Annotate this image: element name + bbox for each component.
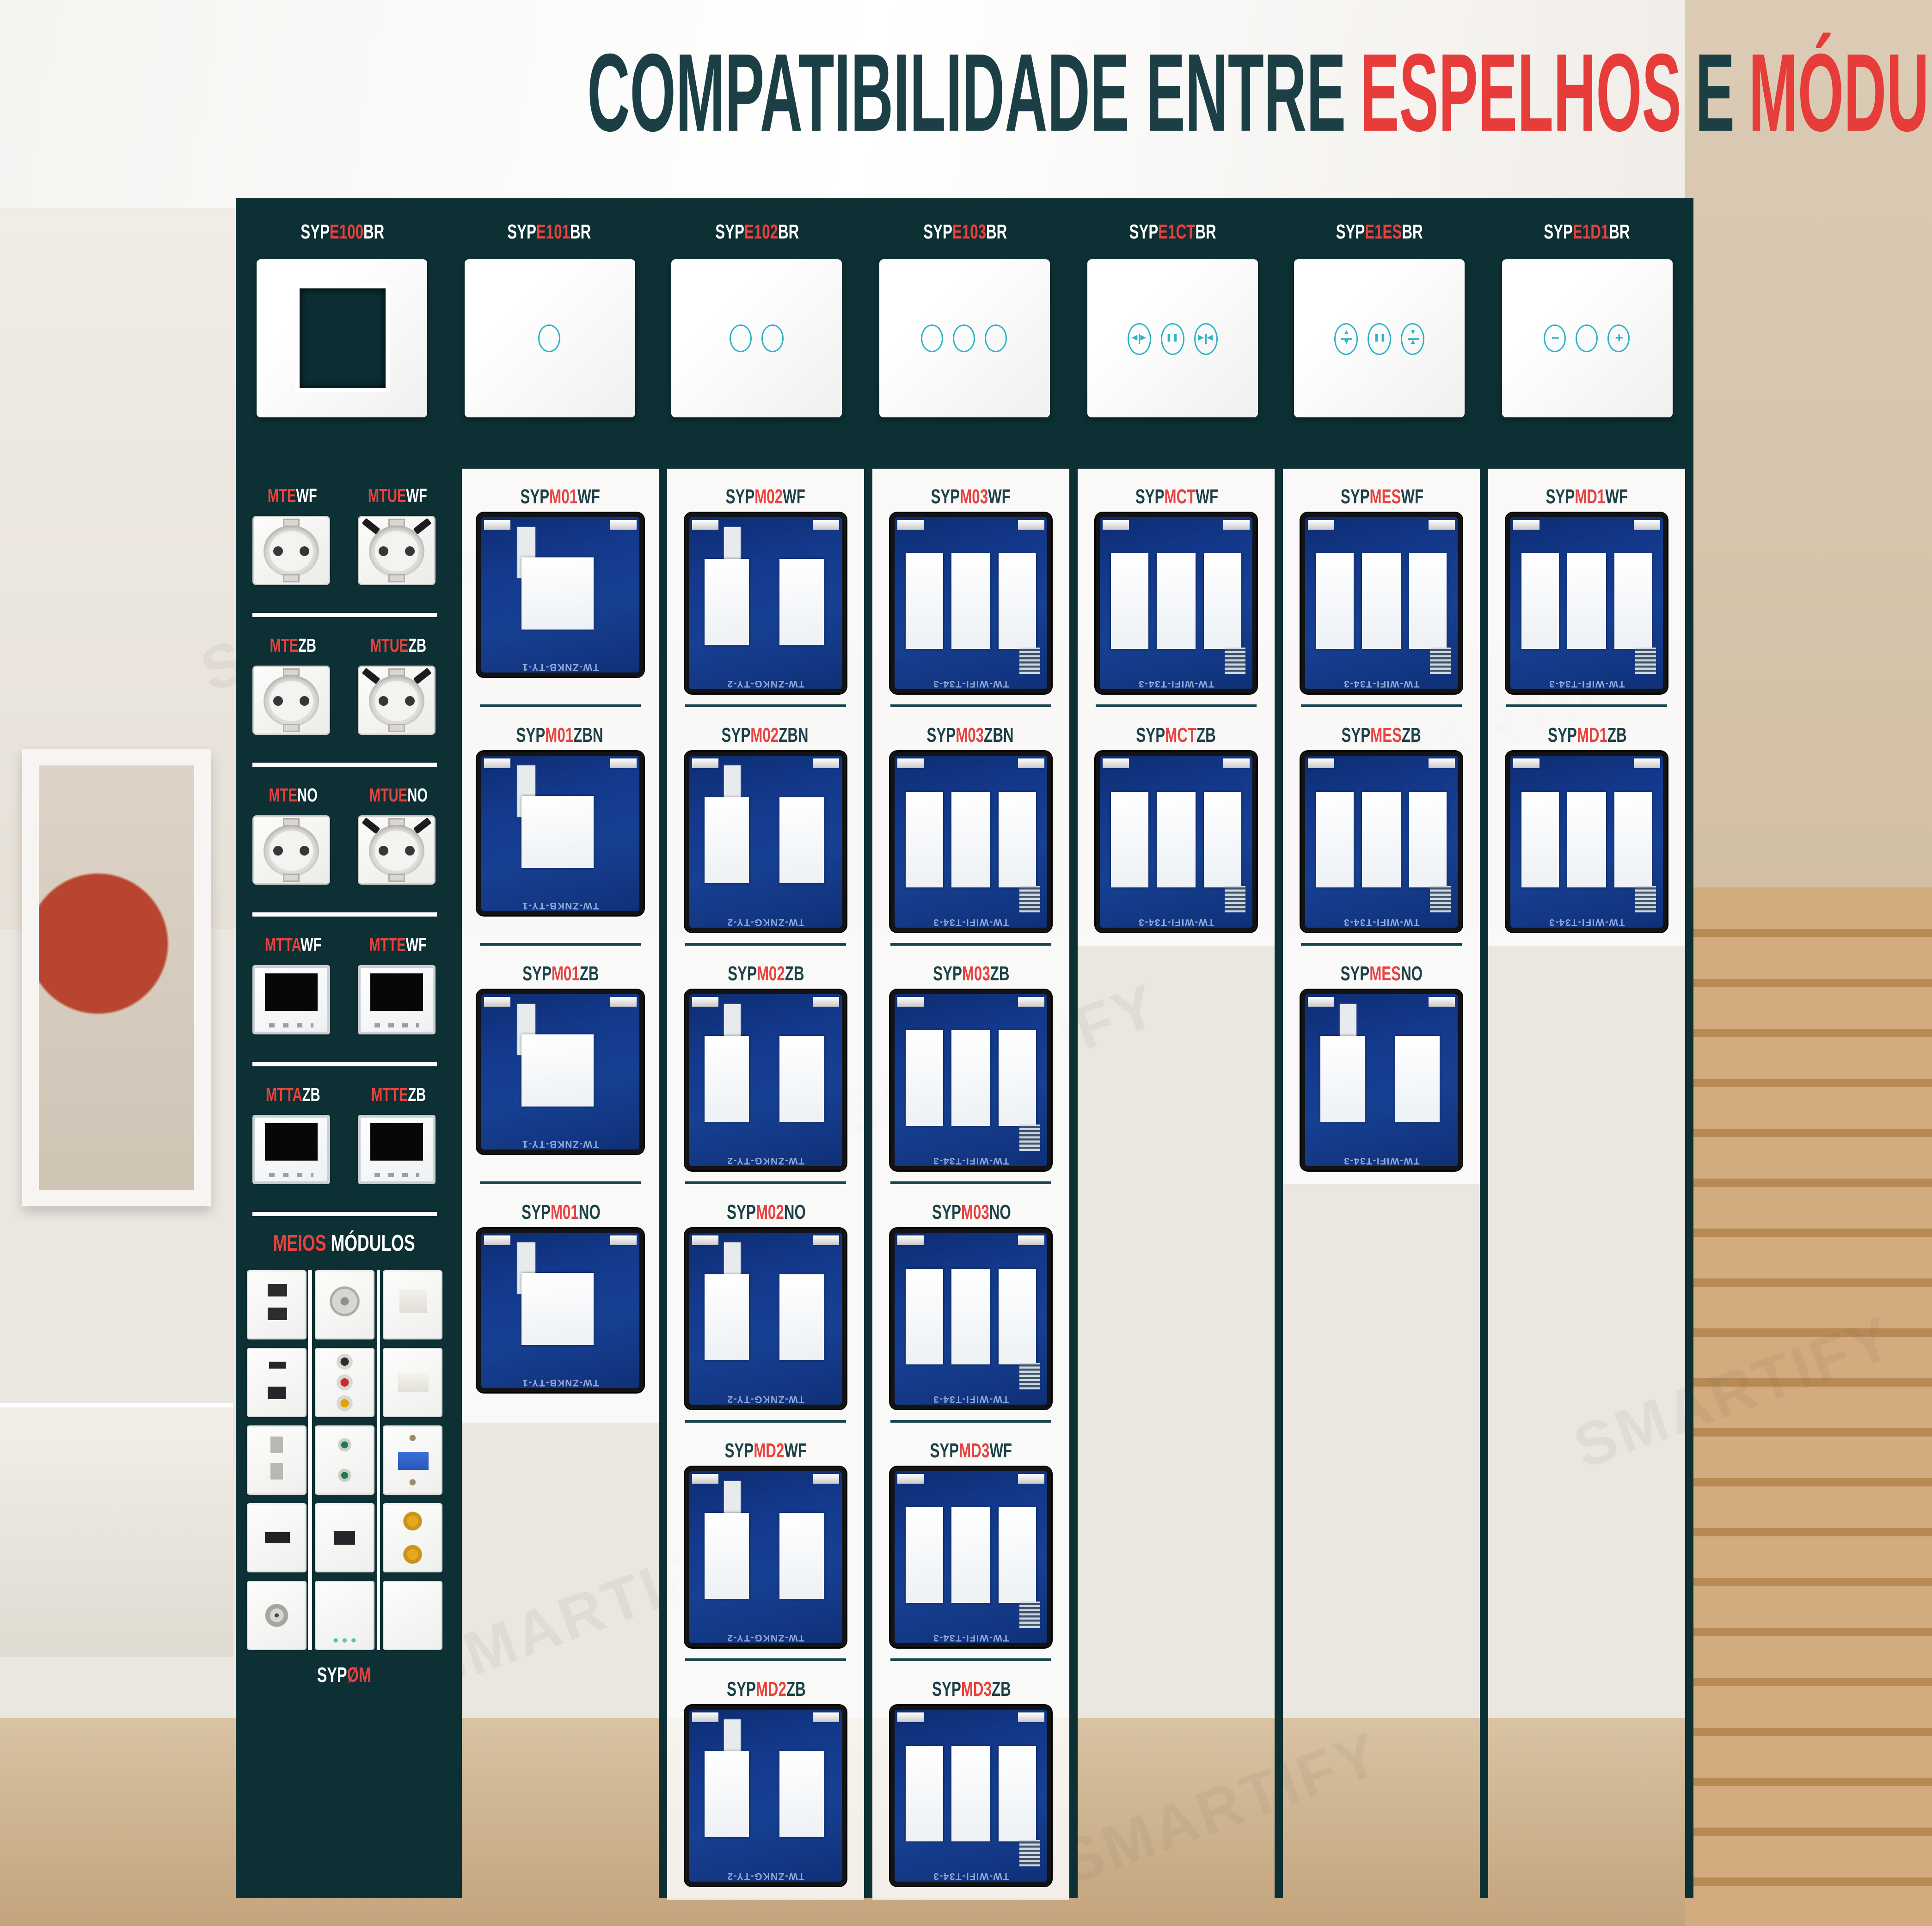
- divider: [252, 1212, 437, 1216]
- pcb-silkscreen: TW-WIFI-T34-3: [895, 1155, 1047, 1164]
- usb-slot-icon: [362, 668, 380, 685]
- module-cell: SYPM02ZBTW-ZNKG-TY-2: [667, 946, 864, 1184]
- half-module-rca-av: [315, 1348, 374, 1417]
- qr-chip: [1636, 887, 1656, 912]
- usb-slot-icon: [362, 518, 380, 535]
- qr-chip: [1020, 887, 1040, 912]
- module-cell: SYPMD1ZBTW-WIFI-T34-3: [1488, 707, 1685, 946]
- qr-chip: [1020, 648, 1040, 674]
- dim-minus-icon: −: [1544, 324, 1566, 352]
- column-m03: SYPM03WFTW-WIFI-T34-3 SYPM03ZBNTW-WIFI-T…: [872, 469, 1069, 1900]
- usb-slot-icon: [413, 818, 432, 834]
- module-image: TW-WIFI-T34-3: [890, 513, 1051, 693]
- module-image: TW-ZNKG-TY-2: [685, 1229, 846, 1409]
- divider: [685, 1181, 846, 1185]
- glass-panels-header: SYPE100BR SYPE101BR SYPE102BR SYPE103BR …: [236, 198, 1693, 469]
- module-cell: SYPM03ZBNTW-WIFI-T34-3: [872, 707, 1069, 946]
- touch-pad: [998, 792, 1037, 888]
- pcb-silkscreen: TW-WIFI-T34-3: [1305, 916, 1458, 926]
- thermostat-image: [358, 965, 435, 1034]
- divider: [252, 763, 437, 766]
- half-module-audio-jacks: [315, 1425, 374, 1495]
- module-cell: SYPMESWFTW-WIFI-T34-3: [1283, 469, 1480, 707]
- touch-pad: [1409, 553, 1447, 649]
- pause-icon: ❚❚: [1160, 323, 1184, 355]
- module-image: TW-WIFI-T34-3: [1506, 513, 1667, 693]
- dim-plus-icon: +: [1608, 324, 1630, 352]
- touch-pad: [1316, 553, 1354, 649]
- touch-pad: [998, 1746, 1037, 1842]
- eu-socket-image: [252, 666, 330, 735]
- thermostat-screen: [370, 1123, 423, 1161]
- pcb-silkscreen: TW-WIFI-T34-3: [895, 916, 1047, 926]
- touch-pad: [1157, 553, 1196, 649]
- module-cell: SYPMD3ZBTW-WIFI-T34-3: [872, 1661, 1069, 1900]
- column-separator: [1069, 469, 1078, 1898]
- divider: [685, 1658, 846, 1662]
- column-mes: SYPMESWFTW-WIFI-T34-3 SYPMESZBTW-WIFI-T3…: [1283, 469, 1480, 1184]
- module-cell: SYPM03WFTW-WIFI-T34-3: [872, 469, 1069, 707]
- pcb-silkscreen: TW-ZNKB-TY-1: [481, 1377, 639, 1387]
- divider: [252, 912, 437, 916]
- pcb-silkscreen: TW-WIFI-T34-3: [895, 1632, 1047, 1641]
- column-separator: [659, 469, 667, 1898]
- module-image: TW-ZNKB-TY-1: [477, 752, 644, 915]
- module-code: SYPM02ZB: [667, 946, 864, 986]
- title-part-dark: COMPATIBILIDADE ENTRE: [587, 32, 1346, 156]
- touch-circle-icon: [730, 324, 752, 352]
- qr-chip: [1430, 887, 1450, 912]
- module-code: MTUEWF: [350, 485, 447, 506]
- eu-socket-usb-image: [358, 815, 435, 885]
- thermostat-screen: [370, 973, 423, 1011]
- divider: [377, 1270, 380, 1650]
- touch-pad: [1409, 792, 1447, 888]
- touch-pad: [905, 553, 944, 649]
- pcb-silkscreen: TW-ZNKG-TY-2: [689, 1393, 842, 1403]
- touch-pad: [998, 1269, 1037, 1365]
- module-code: MTTEWF: [350, 935, 447, 955]
- touch-pad: [1395, 1035, 1440, 1121]
- column-md1: SYPMD1WFTW-WIFI-T34-3 SYPMD1ZBTW-WIFI-T3…: [1488, 469, 1685, 946]
- module-cell: SYPMCTZBTW-WIFI-T34-3: [1078, 707, 1275, 946]
- qr-chip: [1430, 648, 1450, 674]
- module-code: MTTEZB: [350, 1084, 447, 1105]
- touch-pad: [705, 797, 749, 883]
- module-code: SYPMESNO: [1283, 946, 1480, 986]
- divider: [890, 942, 1051, 946]
- module-code: SYPMD3ZB: [872, 1661, 1069, 1701]
- touch-pad: [779, 558, 824, 644]
- module-image: TW-ZNKB-TY-1: [477, 1229, 644, 1392]
- touch-pad: [998, 553, 1037, 649]
- module-code: SYPM03ZBN: [872, 707, 1069, 747]
- module-code: SYPM01NO: [462, 1184, 659, 1224]
- touch-pad: [1110, 553, 1149, 649]
- touch-pad: [779, 1035, 824, 1121]
- touch-circle-icon: [762, 324, 784, 352]
- touch-pad: [1568, 553, 1606, 649]
- usb-slot-icon: [362, 818, 380, 834]
- touch-circle-icon: [953, 324, 975, 352]
- module-cell: SYPMESZBTW-WIFI-T34-3: [1283, 707, 1480, 946]
- module-image: TW-WIFI-T34-3: [890, 1229, 1051, 1409]
- module-cell: SYPM03ZBTW-WIFI-T34-3: [872, 946, 1069, 1184]
- touch-pad: [952, 1746, 990, 1842]
- touch-circle-icon: [985, 324, 1007, 352]
- half-modules-grid: [247, 1270, 442, 1650]
- pause-icon: ❚❚: [1368, 323, 1392, 355]
- page-title: COMPATIBILIDADE ENTREESPELHOSEMÓDULOS: [0, 33, 1932, 154]
- module-cell: SYPM02ZBNTW-ZNKG-TY-2: [667, 707, 864, 946]
- divider: [479, 942, 641, 946]
- qr-chip: [1225, 648, 1245, 674]
- module-code: MTTAWF: [244, 935, 341, 955]
- sidebar-modules: MTEWF MTUEWF MTEZB MTUEZB MTENO MTUENO M…: [236, 469, 454, 1898]
- module-image: TW-ZNKG-TY-2: [685, 513, 846, 693]
- shutter-panel-image: ▲▼ ❚❚ ▼▲: [1294, 259, 1465, 417]
- product-sype1esbr: SYPE1ESBR ▲▼ ❚❚ ▼▲: [1278, 198, 1482, 469]
- module-image: TW-ZNKG-TY-2: [685, 990, 846, 1170]
- title-part-red: MÓDULOS: [1748, 32, 1932, 156]
- sideboard: [0, 1403, 233, 1657]
- sypom-code: SYPØM: [236, 1664, 454, 1688]
- touch-pad: [779, 1751, 824, 1837]
- touch-pad: [521, 557, 594, 629]
- eu-socket-usb-image: [358, 666, 435, 735]
- half-module-rca-gold: [383, 1503, 442, 1572]
- pcb-silkscreen: TW-WIFI-T34-3: [1305, 678, 1458, 687]
- half-modules-heading: MEIOS MÓDULOS: [236, 1231, 454, 1258]
- module-code: SYPM03NO: [872, 1184, 1069, 1224]
- wall-art-canvas: [39, 765, 194, 1190]
- touch-pad: [779, 1512, 824, 1598]
- module-image: TW-WIFI-T34-3: [1096, 752, 1257, 932]
- shutter-close-icon: ▼▲: [1401, 323, 1425, 355]
- column-separator: [1685, 469, 1693, 1898]
- touch-pad: [952, 1507, 990, 1603]
- touch-pad: [1110, 792, 1149, 888]
- usb-slot-icon: [413, 668, 432, 685]
- dimmer-panel-image: − +: [1502, 259, 1673, 417]
- qr-chip: [1020, 1125, 1040, 1151]
- half-module-usb-c-usb-a: [247, 1348, 307, 1417]
- touch-pad: [1203, 553, 1242, 649]
- product-sype101br: SYPE101BR: [448, 198, 651, 469]
- column-m01: SYPM01WFTW-ZNKB-TY-1 SYPM01ZBNTW-ZNKB-TY…: [462, 469, 659, 1423]
- module-image: TW-WIFI-T34-3: [1301, 752, 1462, 932]
- module-code: SYPMD2WF: [667, 1423, 864, 1463]
- pcb-silkscreen: TW-WIFI-T34-3: [1100, 678, 1252, 687]
- socket-recess: [264, 675, 319, 727]
- pcb-silkscreen: TW-ZNKG-TY-2: [689, 1870, 842, 1880]
- column-mct: SYPMCTWFTW-WIFI-T34-3 SYPMCTZBTW-WIFI-T3…: [1078, 469, 1275, 946]
- title-part-red: ESPELHOS: [1360, 32, 1681, 156]
- module-code: SYPM03ZB: [872, 946, 1069, 986]
- eu-socket-image: [252, 815, 330, 885]
- wall-art: [22, 749, 211, 1206]
- thermostat-image: [252, 965, 330, 1034]
- module-image: TW-WIFI-T34-3: [1506, 752, 1667, 932]
- frame-window-panel-image: [257, 259, 427, 417]
- divider: [685, 1419, 846, 1423]
- divider: [1300, 704, 1462, 708]
- divider: [685, 704, 846, 708]
- module-code: SYPMD1ZB: [1488, 707, 1685, 747]
- compatibility-poster: SMARTIFY SMARTIFY SMARTIFY SMARTIFY SMAR…: [0, 0, 1932, 1926]
- divider: [252, 613, 437, 617]
- half-module-usb-single: [315, 1503, 374, 1572]
- module-cell: SYPM01WFTW-ZNKB-TY-1: [462, 469, 659, 707]
- pcb-silkscreen: TW-ZNKG-TY-2: [689, 916, 842, 926]
- module-cell: SYPMESNOTW-WIFI-T34-3: [1283, 946, 1480, 1184]
- sidebar-row: MTENO MTUENO: [236, 785, 454, 923]
- module-cell: SYPM02NOTW-ZNKG-TY-2: [667, 1184, 864, 1423]
- usb-slot-icon: [413, 518, 432, 535]
- touch-pad: [705, 1751, 749, 1837]
- curtain-open-icon: ◀▶: [1127, 323, 1151, 355]
- title-part-dark: E: [1695, 32, 1735, 156]
- touch-pad: [905, 1030, 944, 1126]
- module-cell: SYPMD2WFTW-ZNKG-TY-2: [667, 1423, 864, 1661]
- pcb-silkscreen: TW-WIFI-T34-3: [1510, 916, 1663, 926]
- touch-pad: [521, 796, 594, 868]
- touch-pad: [952, 553, 990, 649]
- module-code: SYPMCTWF: [1078, 469, 1275, 509]
- pcb-silkscreen: TW-WIFI-T34-3: [895, 678, 1047, 687]
- qr-chip: [1020, 1840, 1040, 1866]
- module-code: SYPMESZB: [1283, 707, 1480, 747]
- module-cell: SYPM01ZBNTW-ZNKB-TY-1: [462, 707, 659, 946]
- column-separator: [864, 469, 872, 1898]
- touch-1-panel-image: [464, 259, 635, 417]
- module-image: TW-WIFI-T34-3: [1301, 513, 1462, 693]
- module-cell: SYPMD2ZBTW-ZNKG-TY-2: [667, 1661, 864, 1900]
- divider: [479, 1181, 641, 1185]
- shutter-open-icon: ▲▼: [1335, 323, 1358, 355]
- half-module-blank-switch: [315, 1581, 374, 1650]
- product-code: SYPE103BR: [863, 222, 1067, 244]
- half-module-speaker: [315, 1270, 374, 1339]
- half-module-blank: [383, 1581, 442, 1650]
- module-code: MTUENO: [350, 785, 447, 806]
- touch-pad: [705, 1512, 749, 1598]
- pcb-silkscreen: TW-WIFI-T34-3: [1100, 916, 1252, 926]
- module-code: SYPM01WF: [462, 469, 659, 509]
- touch-circle-icon: [921, 324, 944, 352]
- module-image: TW-WIFI-T34-3: [890, 1467, 1051, 1647]
- product-code: SYPE1CTBR: [1070, 222, 1274, 244]
- touch-pad: [905, 1746, 944, 1842]
- divider: [890, 1658, 1051, 1662]
- pcb-silkscreen: TW-ZNKB-TY-1: [481, 661, 639, 671]
- pcb-silkscreen: TW-ZNKB-TY-1: [481, 1138, 639, 1148]
- module-image: TW-WIFI-T34-3: [890, 990, 1051, 1170]
- pcb-silkscreen: TW-ZNKG-TY-2: [689, 1155, 842, 1164]
- touch-pad: [952, 1269, 990, 1365]
- touch-pad: [705, 1035, 749, 1121]
- module-code: SYPM03WF: [872, 469, 1069, 509]
- column-separator: [454, 469, 462, 1898]
- touch-pad: [905, 792, 944, 888]
- pcb-silkscreen: TW-ZNKG-TY-2: [689, 678, 842, 687]
- divider: [479, 704, 641, 708]
- half-module-usb-double: [247, 1270, 307, 1339]
- half-module-rj45: [383, 1270, 442, 1339]
- touch-pad: [1362, 553, 1401, 649]
- module-code: SYPMESWF: [1283, 469, 1480, 509]
- touch-pad: [1362, 792, 1401, 888]
- module-code: SYPMD1WF: [1488, 469, 1685, 509]
- module-image: TW-ZNKB-TY-1: [477, 990, 644, 1154]
- product-code: SYPE1D1BR: [1485, 222, 1689, 244]
- touch-pad: [779, 797, 824, 883]
- pcb-silkscreen: TW-WIFI-T34-3: [895, 1393, 1047, 1403]
- touch-pad: [1316, 792, 1354, 888]
- dim-circle-icon: [1576, 324, 1598, 352]
- module-code: SYPMD3WF: [872, 1423, 1069, 1463]
- sidebar-row: MTEZB MTUEZB: [236, 635, 454, 774]
- touch-pad: [998, 1507, 1037, 1603]
- divider: [890, 1419, 1051, 1423]
- module-code: MTUEZB: [350, 635, 447, 656]
- module-code: SYPM02NO: [667, 1184, 864, 1224]
- socket-recess: [264, 526, 319, 577]
- module-code: SYPMD2ZB: [667, 1661, 864, 1701]
- touch-pad: [1203, 792, 1242, 888]
- touch-pad: [521, 1273, 594, 1345]
- module-image: TW-WIFI-T34-3: [890, 1706, 1051, 1886]
- touch-pad: [1521, 792, 1559, 888]
- module-cell: SYPMD1WFTW-WIFI-T34-3: [1488, 469, 1685, 707]
- half-module-rj45-cover: [383, 1348, 442, 1417]
- pcb-silkscreen: TW-ZNKG-TY-2: [689, 1632, 842, 1641]
- module-code: SYPMCTZB: [1078, 707, 1275, 747]
- product-sype103br: SYPE103BR: [863, 198, 1067, 469]
- touch-pad: [521, 1034, 594, 1106]
- module-cell: SYPMCTWFTW-WIFI-T34-3: [1078, 469, 1275, 707]
- qr-chip: [1636, 648, 1656, 674]
- pcb-silkscreen: TW-WIFI-T34-3: [1305, 1155, 1458, 1164]
- module-code: MTENO: [244, 785, 341, 806]
- divider: [1300, 942, 1462, 946]
- module-code: MTTAZB: [244, 1084, 341, 1105]
- module-code: MTEWF: [244, 485, 341, 506]
- touch-pad: [905, 1269, 944, 1365]
- module-code: SYPM02ZBN: [667, 707, 864, 747]
- module-code: SYPM01ZB: [462, 946, 659, 986]
- touch-pad: [779, 1274, 824, 1360]
- touch-circle-icon: [538, 324, 560, 352]
- touch-pad: [952, 792, 990, 888]
- pcb-silkscreen: TW-WIFI-T34-3: [1510, 678, 1663, 687]
- sidebar-row: MTEWF MTUEWF: [236, 485, 454, 624]
- module-image: TW-ZNKG-TY-2: [685, 1706, 846, 1886]
- column-separator: [1480, 469, 1488, 1898]
- touch-pad: [1320, 1035, 1365, 1121]
- touch-2-panel-image: [672, 259, 842, 417]
- module-image: TW-WIFI-T34-3: [1096, 513, 1257, 693]
- touch-pad: [1521, 553, 1559, 649]
- sidebar-row: MTTAZB MTTEZB: [236, 1084, 454, 1223]
- touch-pad: [1157, 792, 1196, 888]
- pcb-silkscreen: TW-WIFI-T34-3: [895, 1870, 1047, 1880]
- touch-pad: [1614, 792, 1652, 888]
- product-code: SYPE102BR: [655, 222, 859, 244]
- touch-pad: [952, 1030, 990, 1126]
- half-module-socket-2pin: [247, 1425, 307, 1495]
- poster-canvas: SMARTIFY SMARTIFY SMARTIFY SMARTIFY SMAR…: [0, 0, 1932, 1926]
- product-sype1ctbr: SYPE1CTBR ◀▶ ❚❚ ▶◀: [1070, 198, 1274, 469]
- module-code: SYPM01ZBN: [462, 707, 659, 747]
- touch-3-panel-image: [879, 259, 1050, 417]
- thermostat-image: [252, 1115, 330, 1184]
- product-sype102br: SYPE102BR: [655, 198, 859, 469]
- divider: [890, 704, 1051, 708]
- module-image: TW-WIFI-T34-3: [890, 752, 1051, 932]
- qr-chip: [1225, 887, 1245, 912]
- module-image: TW-ZNKG-TY-2: [685, 1467, 846, 1647]
- column-m02: SYPM02WFTW-ZNKG-TY-2 SYPM02ZBNTW-ZNKG-TY…: [667, 469, 864, 1900]
- divider: [1095, 704, 1257, 708]
- touch-pad: [705, 558, 749, 644]
- product-code: SYPE100BR: [240, 222, 444, 244]
- divider: [890, 1181, 1051, 1185]
- module-cell: SYPM02WFTW-ZNKG-TY-2: [667, 469, 864, 707]
- pcb-silkscreen: TW-ZNKB-TY-1: [481, 900, 639, 910]
- product-code: SYPE101BR: [448, 222, 651, 244]
- half-module-vga: [383, 1425, 442, 1495]
- divider: [1506, 704, 1667, 708]
- product-code: SYPE1ESBR: [1278, 222, 1482, 244]
- module-cell: SYPM01NOTW-ZNKB-TY-1: [462, 1184, 659, 1423]
- eu-socket-image: [252, 516, 330, 585]
- touch-pad: [1568, 792, 1606, 888]
- divider: [252, 1062, 437, 1066]
- column-separator: [1275, 469, 1283, 1898]
- module-image: TW-ZNKG-TY-2: [685, 752, 846, 932]
- qr-chip: [1020, 1602, 1040, 1628]
- sidebar-row: MTTAWF MTTEWF: [236, 935, 454, 1073]
- module-cell: SYPM03NOTW-WIFI-T34-3: [872, 1184, 1069, 1423]
- module-code: SYPM02WF: [667, 469, 864, 509]
- module-cell: SYPM01ZBTW-ZNKB-TY-1: [462, 946, 659, 1184]
- curtain-panel-image: ◀▶ ❚❚ ▶◀: [1087, 259, 1257, 417]
- frame-opening: [299, 288, 385, 388]
- half-module-tv-coax: [247, 1581, 307, 1650]
- thermostat-screen: [265, 973, 318, 1011]
- qr-chip: [1020, 1363, 1040, 1389]
- module-image: TW-ZNKB-TY-1: [477, 513, 644, 677]
- product-sype1d1br: SYPE1D1BR − +: [1485, 198, 1689, 469]
- module-code: MTEZB: [244, 635, 341, 656]
- touch-pad: [998, 1030, 1037, 1126]
- touch-pad: [905, 1507, 944, 1603]
- half-module-hdmi: [247, 1503, 307, 1572]
- product-sype100br: SYPE100BR: [240, 198, 444, 469]
- module-cell: SYPMD3WFTW-WIFI-T34-3: [872, 1423, 1069, 1661]
- thermostat-screen: [265, 1123, 318, 1161]
- socket-recess: [264, 825, 319, 876]
- touch-pad: [705, 1274, 749, 1360]
- curtain-close-icon: ▶◀: [1194, 323, 1217, 355]
- divider: [308, 1270, 312, 1650]
- module-image: TW-WIFI-T34-3: [1301, 990, 1462, 1170]
- touch-pad: [1614, 553, 1652, 649]
- divider: [685, 942, 846, 946]
- eu-socket-usb-image: [358, 516, 435, 585]
- thermostat-image: [358, 1115, 435, 1184]
